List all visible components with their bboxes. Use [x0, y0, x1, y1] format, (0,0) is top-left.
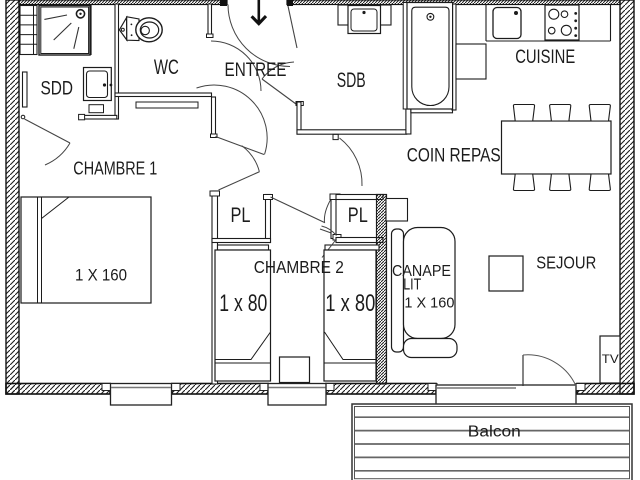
svg-text:TV: TV	[602, 352, 619, 366]
svg-text:SEJOUR: SEJOUR	[536, 252, 596, 272]
svg-text:PL: PL	[231, 203, 251, 227]
svg-text:1 x 80: 1 x 80	[219, 290, 267, 317]
svg-text:Balcon: Balcon	[468, 424, 521, 441]
svg-text:CHAMBRE 1: CHAMBRE 1	[73, 159, 157, 179]
svg-text:1 X 160: 1 X 160	[404, 295, 454, 312]
svg-text:WC: WC	[154, 56, 179, 79]
svg-text:1 x 80: 1 x 80	[325, 290, 375, 317]
svg-text:SDB: SDB	[337, 69, 366, 92]
svg-text:COIN REPAS: COIN REPAS	[407, 146, 501, 167]
svg-text:PL: PL	[348, 203, 368, 227]
svg-text:ENTREE: ENTREE	[225, 60, 287, 81]
svg-text:CUISINE: CUISINE	[515, 47, 575, 68]
svg-text:CHAMBRE 2: CHAMBRE 2	[254, 257, 344, 277]
svg-text:LIT: LIT	[403, 276, 421, 293]
svg-text:SDD: SDD	[40, 78, 73, 100]
svg-text:CANAPE: CANAPE	[392, 263, 451, 280]
svg-text:1 X 160: 1 X 160	[75, 266, 127, 285]
